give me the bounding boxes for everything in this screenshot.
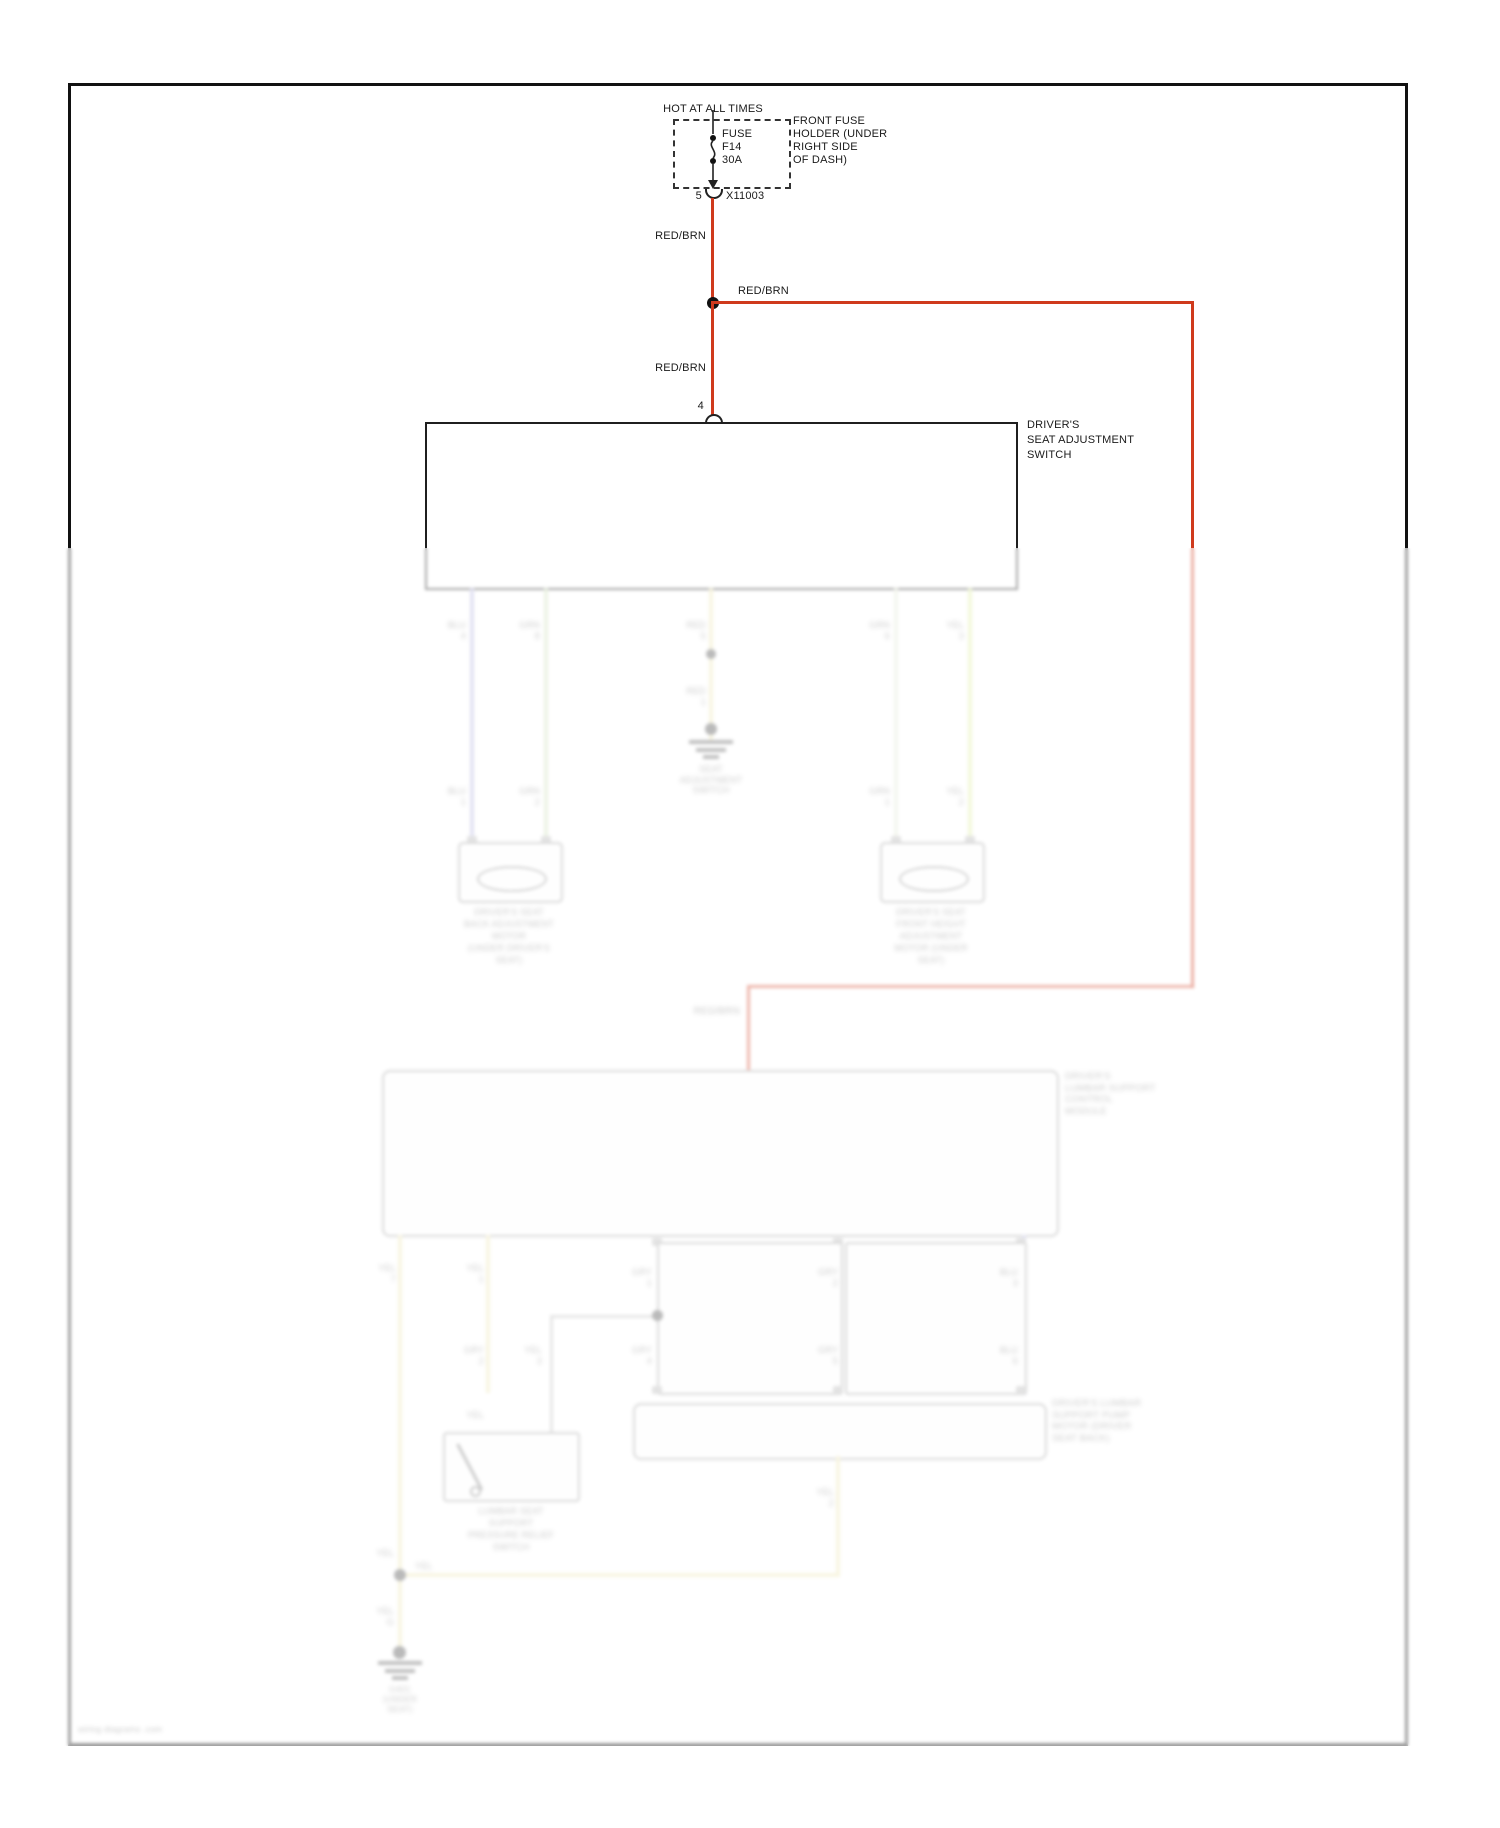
faded-preview-overlay [52,548,1432,1746]
wiring-diagram-page: HOT AT ALL TIMES FUSE F14 30A FRONT FUSE… [0,0,1500,1828]
